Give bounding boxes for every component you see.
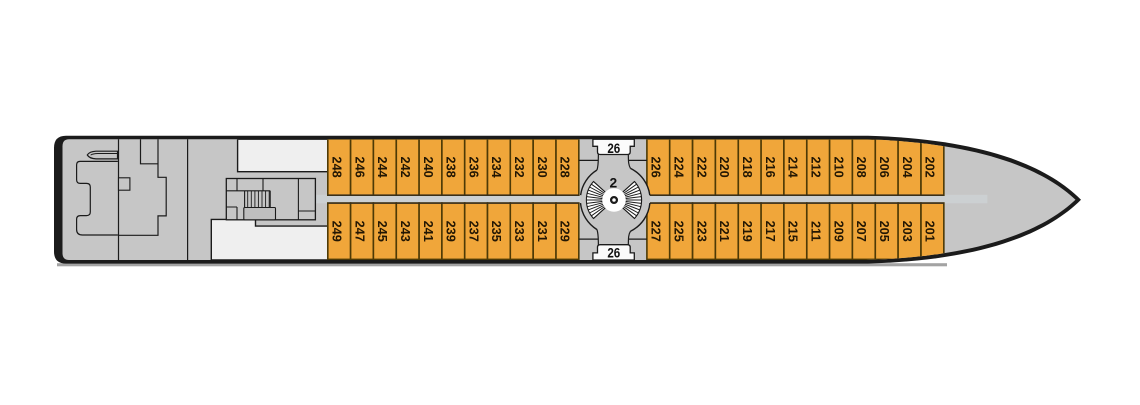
svg-text:238: 238 [444, 157, 458, 178]
svg-text:212: 212 [808, 157, 822, 178]
svg-text:244: 244 [375, 157, 389, 178]
svg-text:220: 220 [717, 157, 731, 178]
svg-text:237: 237 [466, 221, 480, 242]
svg-text:236: 236 [466, 157, 480, 178]
svg-text:242: 242 [398, 157, 412, 178]
svg-text:26: 26 [607, 140, 620, 156]
svg-text:201: 201 [923, 221, 937, 242]
svg-text:208: 208 [854, 157, 868, 178]
svg-text:234: 234 [489, 157, 503, 178]
svg-text:223: 223 [694, 221, 708, 242]
svg-text:232: 232 [512, 157, 526, 178]
svg-text:247: 247 [352, 221, 366, 242]
svg-text:209: 209 [831, 221, 845, 242]
svg-text:241: 241 [421, 221, 435, 242]
svg-text:239: 239 [444, 221, 458, 242]
svg-text:245: 245 [375, 221, 389, 242]
svg-text:205: 205 [877, 221, 891, 242]
svg-text:233: 233 [512, 221, 526, 242]
svg-text:206: 206 [877, 157, 891, 178]
svg-text:224: 224 [671, 157, 685, 178]
svg-text:204: 204 [900, 157, 914, 178]
svg-text:243: 243 [398, 221, 412, 242]
svg-text:219: 219 [740, 221, 754, 242]
svg-text:248: 248 [329, 157, 343, 178]
svg-text:202: 202 [923, 157, 937, 178]
svg-text:228: 228 [558, 157, 572, 178]
svg-text:231: 231 [535, 221, 549, 242]
svg-text:225: 225 [671, 221, 685, 242]
svg-text:218: 218 [740, 157, 754, 178]
svg-text:26: 26 [607, 244, 620, 260]
svg-text:246: 246 [352, 157, 366, 178]
svg-text:227: 227 [649, 221, 663, 242]
svg-text:230: 230 [535, 157, 549, 178]
svg-text:2: 2 [609, 175, 617, 190]
svg-text:249: 249 [329, 221, 343, 242]
svg-text:214: 214 [786, 157, 800, 178]
svg-text:235: 235 [489, 221, 503, 242]
svg-text:207: 207 [854, 221, 868, 242]
svg-text:229: 229 [558, 221, 572, 242]
svg-text:210: 210 [831, 157, 845, 178]
svg-text:222: 222 [694, 157, 708, 178]
svg-text:215: 215 [786, 221, 800, 242]
svg-text:203: 203 [900, 221, 914, 242]
svg-text:221: 221 [717, 221, 731, 242]
svg-text:226: 226 [649, 157, 663, 178]
svg-text:211: 211 [808, 221, 822, 241]
svg-text:240: 240 [421, 157, 435, 178]
svg-text:216: 216 [763, 157, 777, 178]
svg-text:217: 217 [763, 221, 777, 242]
